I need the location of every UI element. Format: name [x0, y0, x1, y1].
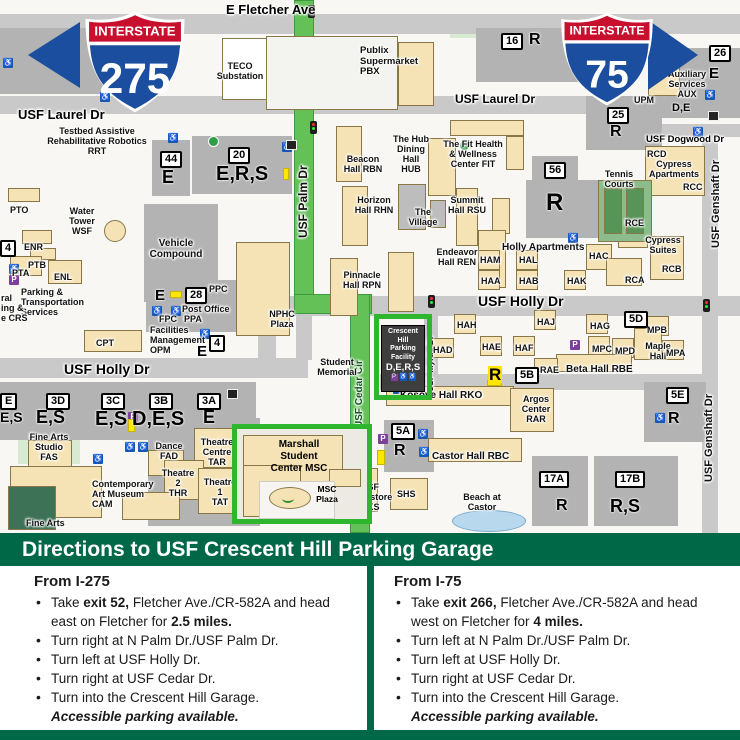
map-label: Student Memorial [312, 357, 362, 377]
accessible-icon: ♿ [400, 374, 407, 381]
map-label: The Fit Health & Wellness Center FIT [440, 139, 506, 169]
parking-letters: E,S [36, 408, 65, 426]
crescent-hill-garage: Crescent Hill Parking Facility D,E,R,S P… [381, 325, 425, 392]
map-label: Pinnacle Hall RPN [336, 270, 388, 290]
map-label: HAF [515, 343, 534, 353]
lot-badge: 4 [209, 335, 225, 352]
lot-badge: 26 [709, 45, 731, 62]
direction-step: Take exit 52, Fletcher Ave./CR-582A and … [34, 593, 346, 631]
crescent-hill-icons: P ♿ ♿ [391, 374, 416, 381]
street-label: E Fletcher Ave [226, 3, 315, 18]
accessible-icon: ♿ [409, 374, 416, 381]
map-label: HAH [457, 320, 477, 330]
crescent-hill-permits: D,E,R,S [386, 362, 420, 373]
map-label: PTO [10, 205, 28, 215]
parking-letters: E,R,S [216, 164, 268, 184]
direction-step: Turn right at USF Cedar Dr. [34, 669, 346, 688]
lot-badge: 5E [666, 387, 689, 404]
lot-badge: 56 [544, 162, 566, 179]
parking-letters: D,E,S [132, 409, 184, 429]
map-label: PPC [209, 284, 228, 294]
lot-badge: 17B [615, 471, 645, 488]
map-label: Holly Apartments [502, 242, 584, 253]
direction-step: Turn right at N Palm Dr./USF Palm Dr. [34, 631, 346, 650]
map-label: ENR [24, 242, 43, 252]
map-label: HAK [567, 276, 587, 286]
parking-letters: R [394, 443, 406, 459]
map-label: MPB [647, 325, 667, 335]
campus-building [604, 188, 622, 234]
map-label: Endeavor Hall REN [430, 247, 484, 267]
map-label: ENL [54, 272, 72, 282]
parking-letters: E [203, 408, 215, 426]
parking-icon: P [570, 340, 580, 350]
map-label: Parking & Transportation Services [21, 287, 84, 317]
map-label: Argos Center RAR [515, 394, 557, 424]
parking-lot [532, 456, 588, 526]
street-label: USF Holly Dr [64, 362, 150, 378]
campus-map: INTERSTATE 275 INTERSTATE 75 Crescent Hi… [0, 0, 740, 533]
map-label: RCB [662, 264, 682, 274]
map-label: ral ing & e CRS [1, 293, 28, 323]
parking-letters: E,S [95, 409, 127, 429]
map-label: HAJ [537, 317, 555, 327]
parking-letters: E [197, 344, 207, 359]
bottom-accent-bar [0, 730, 740, 740]
parking-letters: R [610, 124, 622, 140]
directions-header-bar: Directions to USF Crescent Hill Parking … [0, 533, 740, 566]
map-label: Castor Hall RBC [432, 451, 509, 462]
lot-badge: 28 [185, 287, 207, 304]
road-segment [0, 358, 308, 378]
accessible-icon: ♿ [168, 133, 178, 143]
directions-from-i75: From I-75 Take exit 266, Fletcher Ave./C… [374, 566, 740, 730]
map-label: RAE [540, 365, 559, 375]
campus-building [506, 136, 524, 170]
steps-i275: Take exit 52, Fletcher Ave./CR-582A and … [34, 593, 346, 726]
map-label: PTA [12, 268, 29, 278]
traffic-light-icon [703, 299, 710, 312]
map-label: HAE [482, 342, 501, 352]
campus-building [8, 188, 40, 202]
map-label: HAD [433, 345, 453, 355]
parking-letters: D,E [672, 103, 690, 114]
street-label: USF Genshaft Dr [710, 160, 722, 248]
i275-number: 275 [100, 55, 171, 102]
map-label: HAL [519, 255, 538, 265]
direction-step: Turn left at USF Holly Dr. [34, 650, 346, 669]
map-label: RCC [683, 182, 703, 192]
map-label: HAG [590, 321, 610, 331]
map-label: Contemporary Art Museum CAM [92, 479, 154, 509]
accessible-icon: ♿ [3, 58, 13, 68]
map-label: MPD [615, 346, 635, 356]
map-label: Tennis Courts [596, 169, 642, 189]
lot-badge: 5D [624, 311, 648, 328]
msc-oval-lawn [269, 487, 311, 509]
i75-number: 75 [585, 54, 629, 97]
steps-i75: Take exit 266, Fletcher Ave./CR-582A and… [394, 593, 706, 726]
directions-from-i275: From I-275 Take exit 52, Fletcher Ave./C… [0, 566, 367, 730]
direction-step: Turn into the Crescent Hill Garage.Acces… [34, 688, 346, 726]
map-label: Beacon Hall RBN [336, 154, 390, 174]
direction-step: Turn into the Crescent Hill Garage.Acces… [394, 688, 706, 726]
map-label: Water Tower WSF [58, 206, 106, 236]
street-label: USF Genshaft Dr [703, 394, 715, 482]
street-label: USF Palm Dr [297, 165, 310, 238]
map-label: Publix Supermarket PBX [360, 46, 418, 78]
direction-step: Take exit 266, Fletcher Ave./CR-582A and… [394, 593, 706, 631]
map-label: HAC [589, 251, 609, 261]
interstate-banner: INTERSTATE [94, 24, 175, 39]
campus-building [388, 252, 414, 312]
parking-letters: R [668, 411, 680, 427]
map-label: Vehicle Compound [140, 238, 212, 260]
from-i275-title: From I-275 [34, 573, 367, 590]
map-label: Summit Hall RSU [442, 195, 492, 215]
map-label: Fine Arts [26, 518, 65, 528]
map-label: PTB [28, 260, 46, 270]
direction-step: Turn left at N Palm Dr./USF Palm Dr. [394, 631, 706, 650]
info-icon [208, 136, 219, 147]
lot-badge: 5A [391, 423, 415, 440]
directions-panel: From I-275 Take exit 52, Fletcher Ave./C… [0, 566, 740, 730]
parking-letters: R [546, 191, 563, 215]
map-label: CPT [96, 338, 114, 348]
accessible-icon: ♿ [655, 413, 665, 423]
lot-badge: 16 [501, 33, 523, 50]
water-tower-icon [104, 220, 126, 242]
map-label: RCA [625, 275, 645, 285]
campus-building [492, 198, 510, 234]
lot-badge: 17A [539, 471, 569, 488]
west-arrow-icon [28, 22, 80, 88]
parking-letters: E,S [0, 410, 23, 424]
map-label: The Hub Dining Hall HUB [388, 134, 434, 174]
parking-letters: E [155, 288, 165, 303]
camera-icon [286, 140, 297, 150]
map-label: Testbed Assistive Rehabilitative Robotic… [40, 126, 154, 156]
map-label: HAA [481, 276, 501, 286]
accessible-icon: ♿ [138, 442, 148, 452]
interstate-banner: INTERSTATE [569, 24, 644, 38]
map-label: The Village [403, 207, 443, 227]
direction-step: Turn left at USF Holly Dr. [394, 650, 706, 669]
i275-shield-icon: INTERSTATE 275 [82, 6, 188, 118]
map-label: Dance FAD [148, 441, 190, 461]
marshall-center-highlight-box: Marshall Student Center MSC MSC Plaza [232, 424, 372, 524]
parking-icon: P [391, 374, 398, 381]
lot-badge: 3C [101, 393, 125, 410]
directions-title: Directions to USF Crescent Hill Parking … [22, 538, 493, 561]
map-label: NPHC Plaza [260, 309, 304, 329]
msc-plaza-label: MSC Plaza [309, 485, 345, 504]
map-label: Fine Arts Studio FAS [22, 432, 76, 462]
lot-badge: 3B [149, 393, 173, 410]
traffic-light-icon [428, 295, 435, 308]
campus-building [450, 120, 524, 136]
parking-letters: R [529, 32, 541, 48]
lot-badge: 5B [515, 367, 539, 384]
map-label: TECO Substation [208, 61, 272, 81]
lot-badge: E [0, 393, 17, 410]
lot-badge: 3A [197, 393, 221, 410]
parking-letters: E [709, 66, 719, 81]
lot-badge: 44 [160, 151, 182, 168]
from-i75-title: From I-75 [394, 573, 740, 590]
accessible-icon: ♿ [93, 454, 103, 464]
parking-letters: R [556, 498, 568, 514]
lot-badge: 3D [46, 393, 70, 410]
map-label: SHS [397, 489, 416, 499]
map-label: Beach at Castor [455, 492, 509, 512]
usf-parking-directions-page: INTERSTATE 275 INTERSTATE 75 Crescent Hi… [0, 0, 740, 740]
map-label: RCE [625, 218, 644, 228]
accessible-icon: ♿ [418, 429, 428, 439]
street-label: USF Laurel Dr [455, 93, 535, 106]
map-label: Horizon Hall RHN [348, 195, 400, 215]
accessible-icon: ♿ [419, 447, 429, 457]
parking-letters: R [488, 366, 502, 383]
lawn-path-icon [282, 494, 294, 503]
map-label: Theatre 2 THR [158, 468, 198, 498]
crescent-hill-highlight-box: Crescent Hill Parking Facility D,E,R,S P… [374, 314, 432, 400]
traffic-light-icon [310, 121, 317, 134]
map-label: HAB [519, 276, 539, 286]
map-label: PPA [184, 314, 202, 324]
beach-pond [452, 510, 526, 532]
map-label: MPA [666, 348, 685, 358]
map-label: Cypress Apartments [642, 159, 706, 179]
parking-letters: E [162, 168, 174, 186]
accessible-icon: ♿ [125, 442, 135, 452]
column-divider [367, 566, 374, 730]
parking-letters: R,S [610, 497, 640, 515]
i75-shield-icon: INTERSTATE 75 [558, 6, 656, 112]
crescent-hill-label: Crescent Hill Parking Facility [388, 328, 418, 362]
map-label: Post Office [182, 304, 230, 314]
street-label: USF Dogwood Dr [646, 135, 724, 146]
map-label: FPC [159, 314, 177, 324]
yellow-marker [377, 450, 385, 465]
lot-badge: 20 [228, 147, 250, 164]
camera-icon [708, 111, 719, 121]
direction-step: Turn right at USF Cedar Dr. [394, 669, 706, 688]
lot-badge: 4 [0, 240, 16, 257]
map-label: Beta Hall RBE [566, 364, 633, 375]
map-label: MPC [592, 344, 612, 354]
map-label: RCD [647, 149, 667, 159]
yellow-marker [170, 291, 182, 298]
yellow-marker [283, 168, 289, 180]
parking-icon: P [378, 434, 388, 444]
marshall-student-center-label: Marshall Student Center MSC [247, 439, 351, 475]
map-label: Cypress Suites [638, 235, 688, 255]
camera-icon [227, 389, 238, 399]
map-label: HAM [480, 255, 501, 265]
street-label: USF Holly Dr [478, 294, 564, 310]
